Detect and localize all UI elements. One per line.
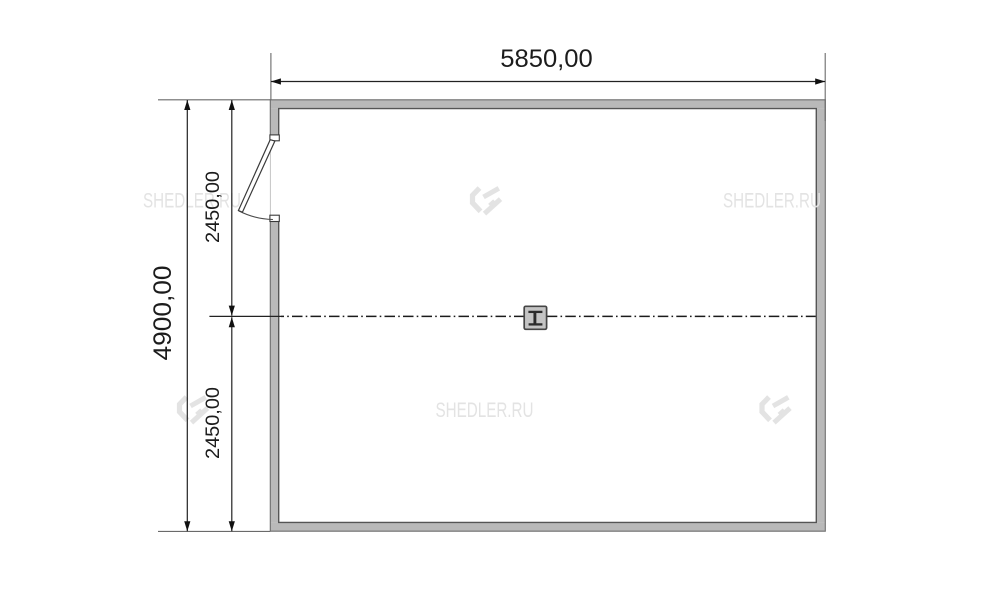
svg-text:SHEDLER.RU: SHEDLER.RU	[723, 189, 821, 213]
svg-text:2450,00: 2450,00	[202, 387, 224, 459]
svg-text:SHEDLER.RU: SHEDLER.RU	[143, 189, 241, 213]
svg-text:SHEDLER.RU: SHEDLER.RU	[436, 398, 534, 422]
svg-text:5850,00: 5850,00	[500, 45, 593, 73]
svg-text:2450,00: 2450,00	[202, 171, 224, 243]
svg-text:4900,00: 4900,00	[149, 266, 177, 361]
